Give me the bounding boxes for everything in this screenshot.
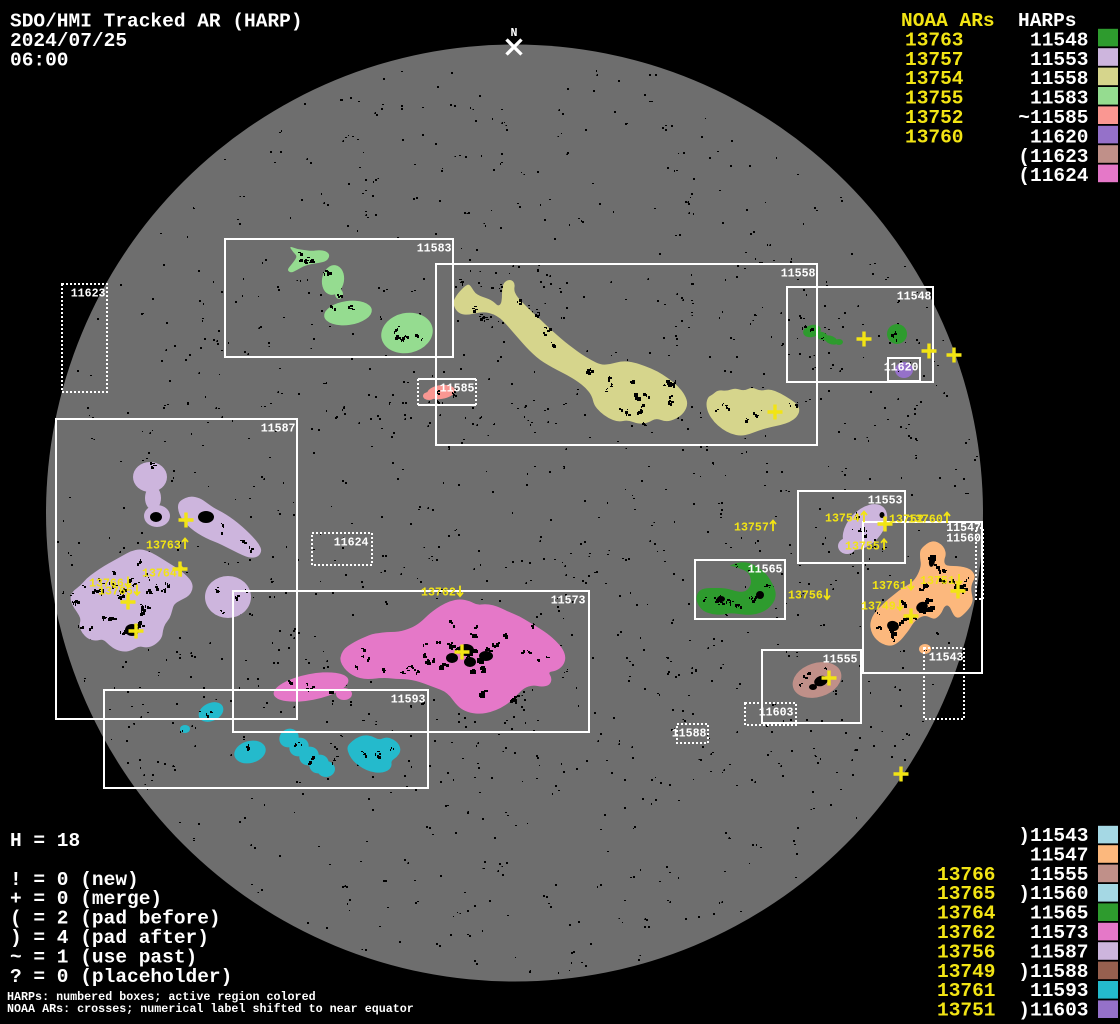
svg-text:13760: 13760 [908,514,943,527]
svg-text:13762: 13762 [421,587,456,600]
svg-text:NOAA ARs: crosses; numerical l: NOAA ARs: crosses; numerical label shift… [7,1002,414,1016]
svg-text:11558: 11558 [781,268,816,281]
svg-text:11548: 11548 [897,291,932,304]
svg-text:11587: 11587 [261,423,296,436]
svg-text:06:00: 06:00 [10,50,69,72]
svg-text:13751: 13751 [937,1000,996,1022]
svg-text:? = 0 (placeholder): ? = 0 (placeholder) [10,966,232,988]
svg-text:11543: 11543 [929,652,964,665]
svg-text:11603: 11603 [759,707,794,720]
svg-text:11624: 11624 [334,537,369,550]
svg-text:13751: 13751 [920,575,955,588]
svg-text:11583: 11583 [417,243,452,256]
svg-text:13760: 13760 [905,126,964,148]
svg-text:13755: 13755 [845,540,880,553]
svg-text:11620: 11620 [884,362,919,375]
svg-text:13756: 13756 [788,590,823,603]
svg-text:11585: 11585 [440,383,475,396]
svg-text:H = 18: H = 18 [10,830,80,852]
svg-text:13754: 13754 [825,513,860,526]
svg-text:13763: 13763 [146,540,181,553]
svg-text:11588: 11588 [672,728,707,741]
svg-text:11547: 11547 [946,522,981,535]
svg-text:13764: 13764 [142,567,177,580]
svg-text:N: N [511,27,518,40]
svg-text:13749: 13749 [861,601,896,614]
svg-text:11623: 11623 [71,288,106,301]
svg-text:13761: 13761 [872,580,907,593]
svg-text:11593: 11593 [391,694,426,707]
svg-text:11573: 11573 [551,595,586,608]
svg-text:11553: 11553 [868,495,903,508]
svg-text:13757: 13757 [734,522,769,535]
svg-text:)11603: )11603 [1018,1000,1088,1022]
svg-text:11555: 11555 [823,654,858,667]
svg-text:11565: 11565 [748,564,783,577]
svg-text:(11624: (11624 [1018,165,1089,187]
